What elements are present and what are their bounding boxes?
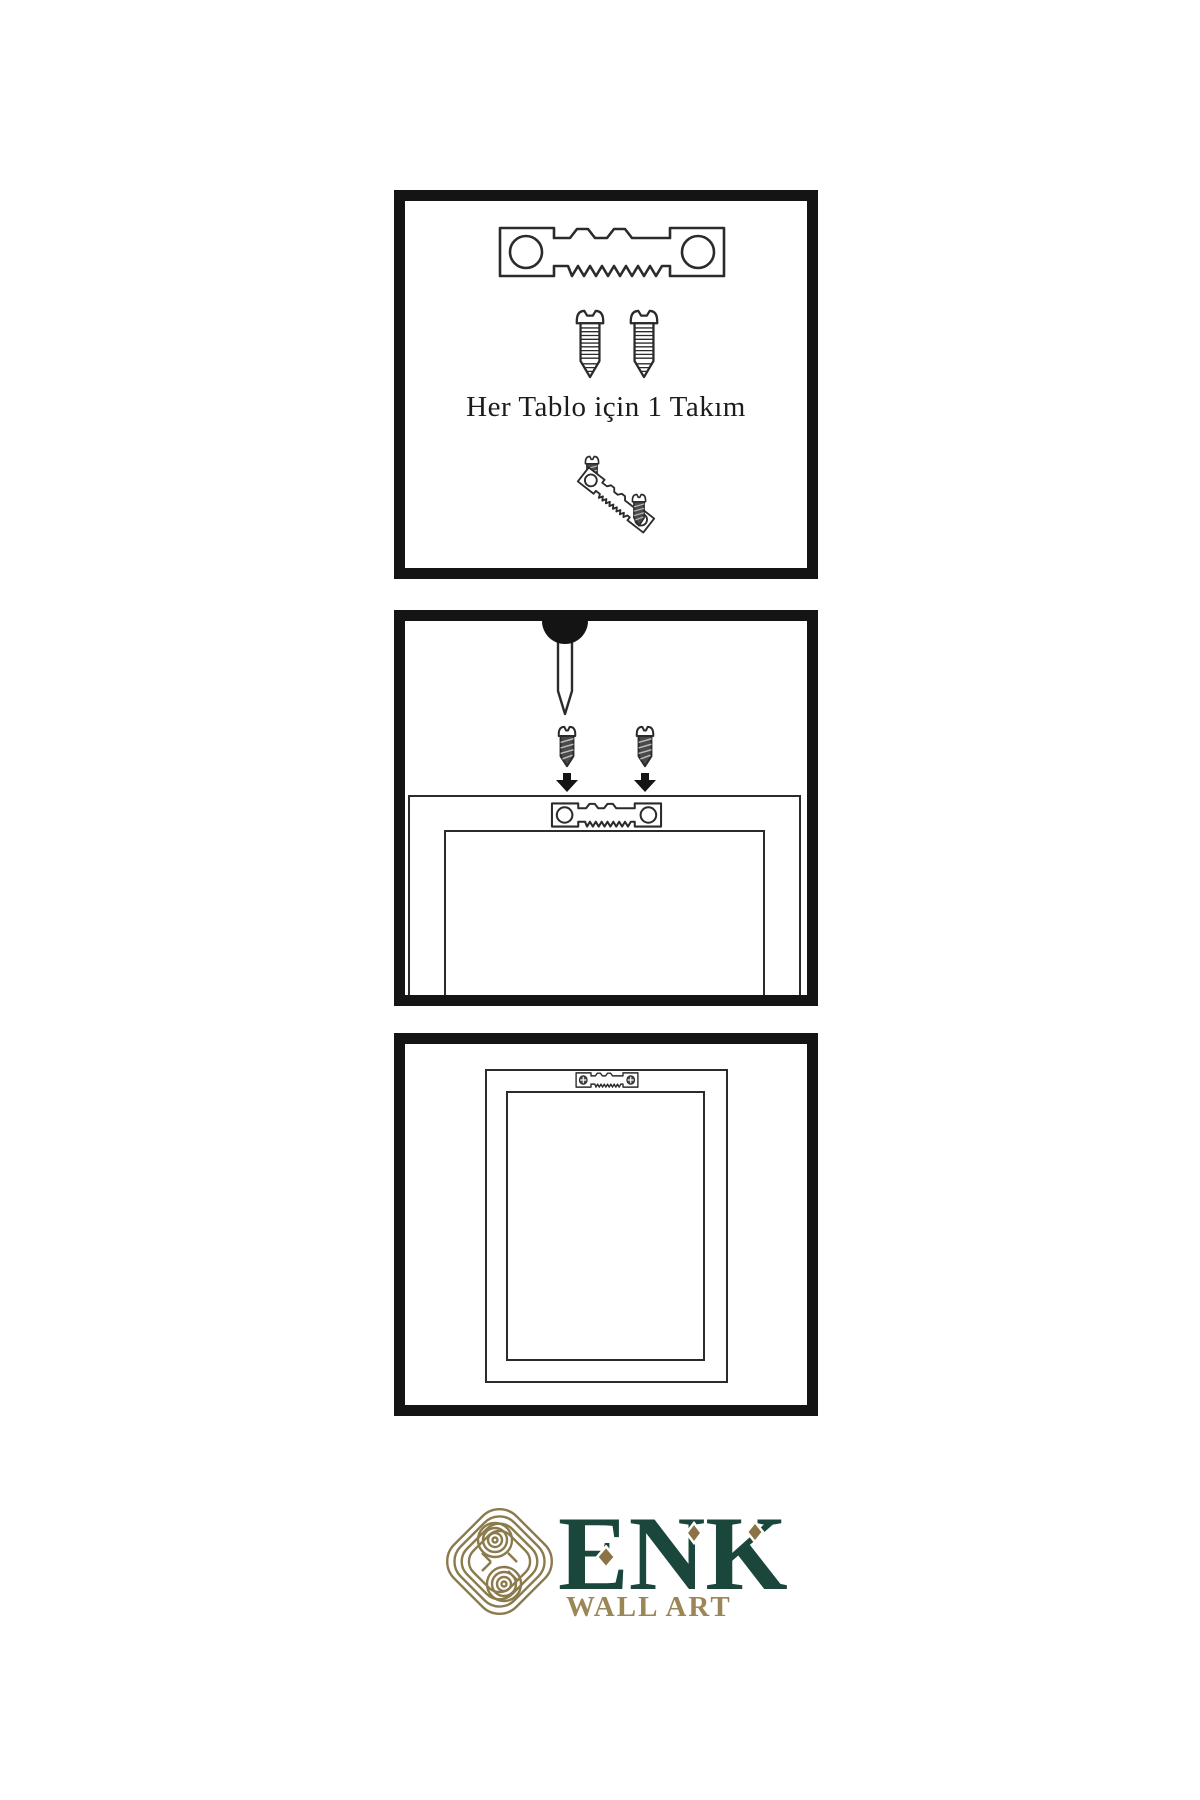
down-arrow-icon [634, 773, 656, 792]
panel-mounted-frame [394, 1033, 818, 1416]
wood-screw-icon [556, 724, 578, 770]
nail-icon [542, 621, 588, 719]
down-arrow-icon [556, 773, 578, 792]
sawtooth-hanger-icon [550, 802, 663, 828]
frame-back-inner-outline [444, 830, 765, 1005]
brand-subtitle: WALL ART [566, 1593, 732, 1622]
sawtooth-hanger-icon [496, 225, 728, 279]
machine-screw-icon [627, 307, 661, 381]
machine-screw-icon [573, 307, 607, 381]
wood-screw-icon [634, 724, 656, 770]
panel-hardware-kit: Her Tablo için 1 Takım [394, 190, 818, 579]
wood-screw-icon [629, 493, 649, 528]
sawtooth-hanger-with-screws-icon [575, 1072, 639, 1088]
panel-mounting-instructions [394, 610, 818, 1006]
kit-caption: Her Tablo için 1 Takım [405, 391, 807, 424]
frame-back-inner-outline [506, 1091, 705, 1361]
instruction-sheet: Her Tablo için 1 Takım [0, 0, 1200, 1800]
knot-logo-icon [437, 1498, 562, 1625]
